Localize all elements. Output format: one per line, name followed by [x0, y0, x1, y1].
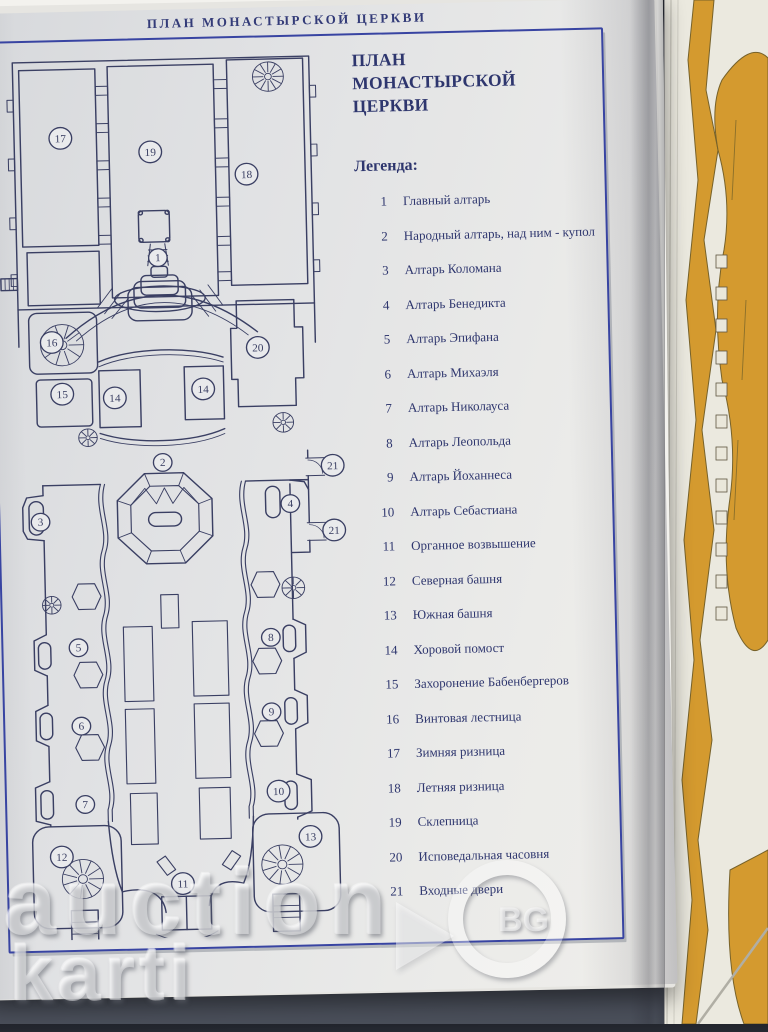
svg-text:3: 3: [38, 517, 44, 529]
legend-item: 16Винтовая лестница: [367, 706, 606, 746]
svg-text:15: 15: [56, 389, 68, 401]
plan-pews: [123, 593, 241, 876]
legend-item: 14Хоровой помост: [365, 637, 604, 677]
plan-marker-20: 20: [246, 336, 269, 358]
legend-item-label: Алтарь Коломана: [404, 260, 501, 278]
legend-item-label: Алтарь Себастиана: [410, 501, 517, 520]
legend-item-number: 14: [365, 642, 397, 659]
plan-marker-12: 12: [50, 846, 73, 868]
legend-item-number: 11: [363, 539, 395, 556]
plan-marker-13: 13: [299, 825, 322, 847]
legend-item-label: Винтовая лестница: [415, 708, 522, 726]
legend-item: 19Склепница: [369, 810, 608, 850]
svg-text:21: 21: [328, 525, 340, 537]
legend-item: 3Алтарь Коломана: [356, 258, 595, 298]
spiral-stair-icon: [252, 62, 284, 92]
legend-item-label: Главный алтарь: [403, 191, 491, 209]
plan-dome-octagon: [117, 472, 214, 564]
svg-text:2: 2: [160, 457, 166, 469]
legend-item-number: 17: [368, 746, 400, 763]
legend-item: 5Алтарь Эпифана: [358, 327, 597, 367]
legend-item: 21Входные двери: [371, 879, 610, 919]
legend-item: 11Органное возвышение: [363, 534, 602, 574]
legend-heading: Легенда:: [354, 153, 592, 177]
legend-item-label: Алтарь Леопольда: [409, 432, 512, 450]
legend-item-number: 2: [356, 228, 388, 245]
svg-text:16: 16: [46, 337, 58, 349]
legend-item: 8Алтарь Леопольда: [361, 430, 600, 470]
svg-text:14: 14: [109, 393, 121, 405]
legend-item-label: Летняя ризница: [417, 778, 505, 796]
legend-item: 17Зимняя ризница: [368, 741, 607, 781]
plan-marker-18: 18: [235, 163, 258, 185]
plan-marker-8: 8: [261, 628, 280, 646]
plan-marker-4: 4: [281, 495, 300, 513]
svg-text:8: 8: [268, 632, 274, 644]
legend-item-label: Алтарь Николауса: [408, 398, 510, 416]
svg-text:21: 21: [327, 460, 339, 472]
svg-text:13: 13: [305, 831, 317, 843]
plan-marker-17: 17: [49, 127, 72, 149]
legend-list: 1Главный алтарь2Народный алтарь, над ним…: [355, 189, 610, 919]
plan-nave-walls: [98, 481, 255, 822]
legend-item-label: Алтарь Эпифана: [406, 329, 499, 347]
page-title-line3: ЦЕРКВИ: [352, 90, 590, 119]
legend-item: 18Летняя ризница: [369, 775, 608, 815]
svg-text:19: 19: [144, 147, 156, 159]
legend-item-number: 4: [357, 297, 389, 314]
page-surface: ПЛАН МОНАСТЫРСКОЙ ЦЕРКВИ: [0, 0, 678, 1000]
plan-marker-1: 1: [148, 249, 167, 267]
svg-text:12: 12: [56, 852, 68, 864]
book-photo: { "photo": { "watermark": { "word1": "au…: [0, 0, 768, 1024]
legend-item-number: 13: [365, 608, 397, 625]
legend-item: 9Алтарь Йоханнеса: [361, 465, 600, 505]
legend-item-number: 8: [361, 435, 393, 452]
legend-item-number: 19: [369, 815, 401, 832]
svg-text:14: 14: [197, 384, 209, 396]
plan-marker-15: 15: [51, 383, 74, 405]
legend-item-label: Алтарь Михаэля: [407, 364, 499, 382]
legend-item: 6Алтарь Михаэля: [359, 361, 598, 401]
legend-item-label: Алтарь Бенедикта: [405, 294, 506, 312]
legend-item-number: 16: [367, 711, 399, 728]
spiral-stair-icon: [261, 844, 303, 884]
legend-item-number: 3: [356, 263, 388, 280]
svg-text:18: 18: [241, 169, 253, 181]
svg-text:10: 10: [273, 786, 285, 798]
book-gutter-shadow: [630, 0, 665, 1024]
svg-text:7: 7: [82, 799, 88, 811]
legend-item-label: Входные двери: [419, 881, 503, 899]
next-page-illustration: [664, 0, 768, 1024]
legend-item: 15Захоронение Бабенбергеров: [366, 672, 605, 712]
legend-item-label: Хоровой помост: [413, 640, 504, 658]
page-title: ПЛАН МОНАСТЫРСКОЙ ЦЕРКВИ: [351, 44, 591, 119]
book-right-page: [664, 0, 768, 1024]
legend-item: 1Главный алтарь: [355, 189, 594, 229]
plan-marker-9: 9: [262, 703, 281, 721]
legend-item-number: 20: [370, 849, 402, 866]
legend-item-label: Южная башня: [413, 605, 493, 623]
book-left-page: ПЛАН МОНАСТЫРСКОЙ ЦЕРКВИ: [0, 0, 678, 1000]
legend-item-number: 21: [371, 884, 403, 901]
svg-text:11: 11: [177, 879, 188, 891]
spiral-stair-icon: [42, 596, 61, 614]
legend-item: 20Исповедальная часовня: [370, 844, 609, 884]
plan-marker-10: 10: [267, 780, 290, 802]
plan-marker-21: 21: [323, 519, 346, 541]
plan-sacristy-block: [0, 56, 321, 310]
legend-item-number: 1: [355, 194, 387, 211]
legend-item-number: 9: [361, 470, 393, 487]
svg-text:4: 4: [287, 498, 293, 510]
spiral-stair-icon: [273, 412, 294, 432]
legend-item-number: 15: [366, 677, 398, 694]
legend-item-label: Северная башня: [412, 571, 503, 589]
legend-item: 4Алтарь Бенедикта: [357, 292, 596, 332]
plan-marker-11: 11: [171, 873, 194, 895]
plan-marker-14: 14: [192, 378, 215, 400]
plan-marker-21: 21: [321, 454, 344, 476]
plan-marker-19: 19: [139, 141, 162, 163]
legend-item: 13Южная башня: [365, 603, 604, 643]
plan-marker-14: 14: [103, 387, 126, 409]
legend-item-label: Склепница: [417, 813, 478, 830]
legend-item-number: 7: [360, 401, 392, 418]
legend-item-number: 18: [369, 780, 401, 797]
svg-text:17: 17: [55, 133, 67, 145]
legend-item-label: Народный алтарь, над ним - купол: [404, 223, 596, 243]
plan-marker-2: 2: [153, 453, 172, 471]
legend-item-label: Зимняя ризница: [416, 743, 505, 761]
spiral-stair-icon: [79, 429, 98, 447]
legend-item: 10Алтарь Себастиана: [362, 499, 601, 539]
legend-item-label: Исповедальная часовня: [418, 846, 549, 865]
plan-marker-5: 5: [69, 639, 88, 657]
legend-item-label: Захоронение Бабенбергеров: [414, 673, 569, 693]
legend-item-number: 5: [358, 332, 390, 349]
legend-item-label: Алтарь Йоханнеса: [409, 467, 512, 485]
svg-text:20: 20: [252, 342, 264, 354]
plan-high-altar: [16, 207, 316, 349]
floor-plan: 1719181162015141422134215869710121311: [0, 42, 362, 942]
svg-text:9: 9: [269, 707, 275, 719]
plan-marker-7: 7: [76, 795, 95, 813]
svg-text:1: 1: [155, 252, 161, 264]
plan-marker-3: 3: [31, 513, 50, 531]
legend-item-number: 12: [364, 573, 396, 590]
svg-text:5: 5: [76, 642, 82, 654]
plan-marker-6: 6: [72, 717, 91, 735]
legend-item: 7Алтарь Николауса: [360, 396, 599, 436]
legend-item-label: Органное возвышение: [411, 535, 536, 554]
svg-text:6: 6: [78, 721, 84, 733]
plan-number-markers: 1719181162015141422134215869710121311: [22, 121, 354, 898]
legend-item: 2Народный алтарь, над ним - купол: [356, 223, 595, 263]
plan-marker-16: 16: [40, 331, 63, 353]
legend-item-number: 10: [362, 504, 394, 521]
legend-item: 12Северная башня: [364, 568, 603, 608]
legend-column: ПЛАН МОНАСТЫРСКОЙ ЦЕРКВИ Легенда: 1Главн…: [351, 44, 609, 919]
legend-item-number: 6: [359, 366, 391, 383]
spiral-stair-icon: [282, 577, 305, 599]
